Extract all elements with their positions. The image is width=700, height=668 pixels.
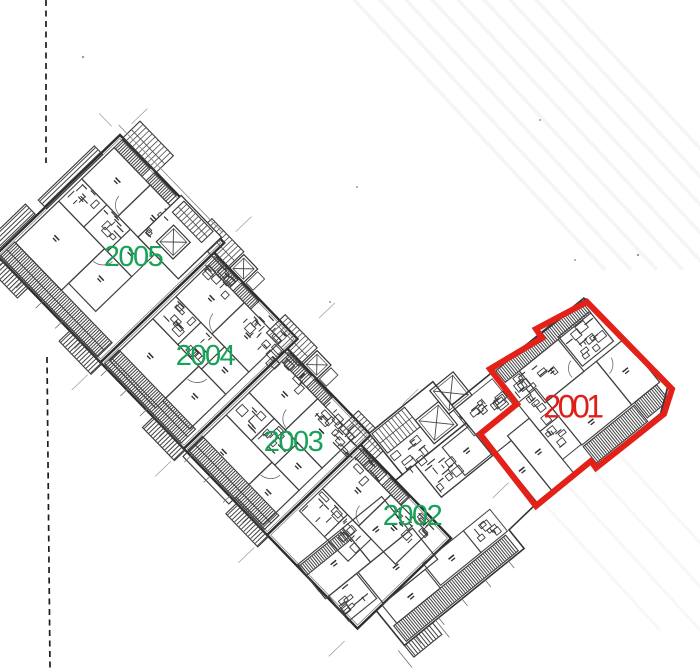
svg-text:2001: 2001: [543, 389, 603, 425]
svg-text:2003: 2003: [264, 426, 323, 458]
svg-text:2002: 2002: [383, 500, 442, 532]
svg-text:2004: 2004: [176, 340, 236, 372]
svg-text:2005: 2005: [104, 241, 163, 273]
